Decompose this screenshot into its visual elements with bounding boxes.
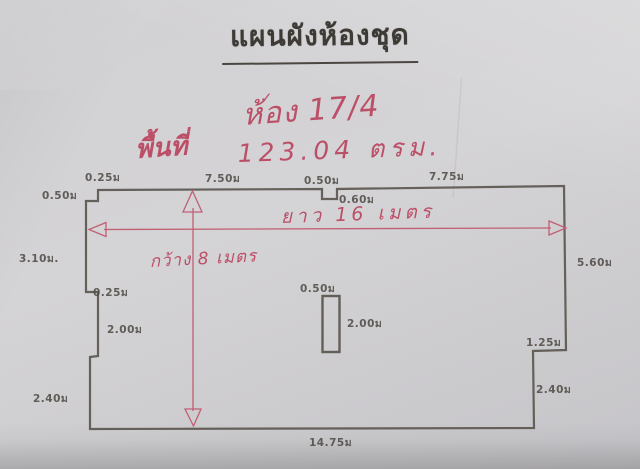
dim-right-side: 5.60ม (577, 257, 612, 269)
dim-bottom: 14.75ม (309, 437, 352, 449)
width-arrow (183, 191, 202, 426)
pillar-outline (323, 296, 340, 352)
arrowhead-down-icon (185, 409, 201, 426)
dim-left-upper: 3.10ม. (19, 253, 59, 265)
dim-pillar-width: 0.50ม (300, 283, 335, 295)
dim-top-notch-width: 0.50ม (304, 175, 339, 187)
width-note: กว้าง 8 เมตร (149, 246, 258, 272)
dim-pillar-height: 2.00ม (347, 318, 382, 330)
scanned-floorplan-page: แผนผังห้องชุด 0.50ม 0.25ม 7.50ม 0.50ม 0.… (0, 0, 640, 469)
dim-left-notch: 0.25ม (93, 287, 128, 299)
dim-right-step: 1.25ม (526, 337, 561, 349)
area-label-note: พื้นที่ (134, 125, 193, 165)
dim-top-left-segment: 7.50ม (205, 173, 240, 185)
dim-left-middle: 2.00ม (107, 324, 142, 336)
dim-top-left-step-h: 0.25ม (85, 172, 120, 184)
length-note: ยาว 16 เมตร (280, 201, 435, 228)
dim-left-lower: 2.40ม (33, 393, 68, 405)
dim-right-lower: 2.40ม (536, 384, 571, 396)
area-value-note: 123.04 ตรม. (237, 132, 442, 168)
arrowhead-left-icon (89, 223, 106, 237)
dim-top-left-step-v: 0.50ม (42, 190, 77, 202)
dim-top-right-segment: 7.75ม (429, 171, 464, 183)
floorplan-drawing: 0.50ม 0.25ม 7.50ม 0.50ม 0.60ม 7.75ม 3.10… (0, 0, 640, 469)
